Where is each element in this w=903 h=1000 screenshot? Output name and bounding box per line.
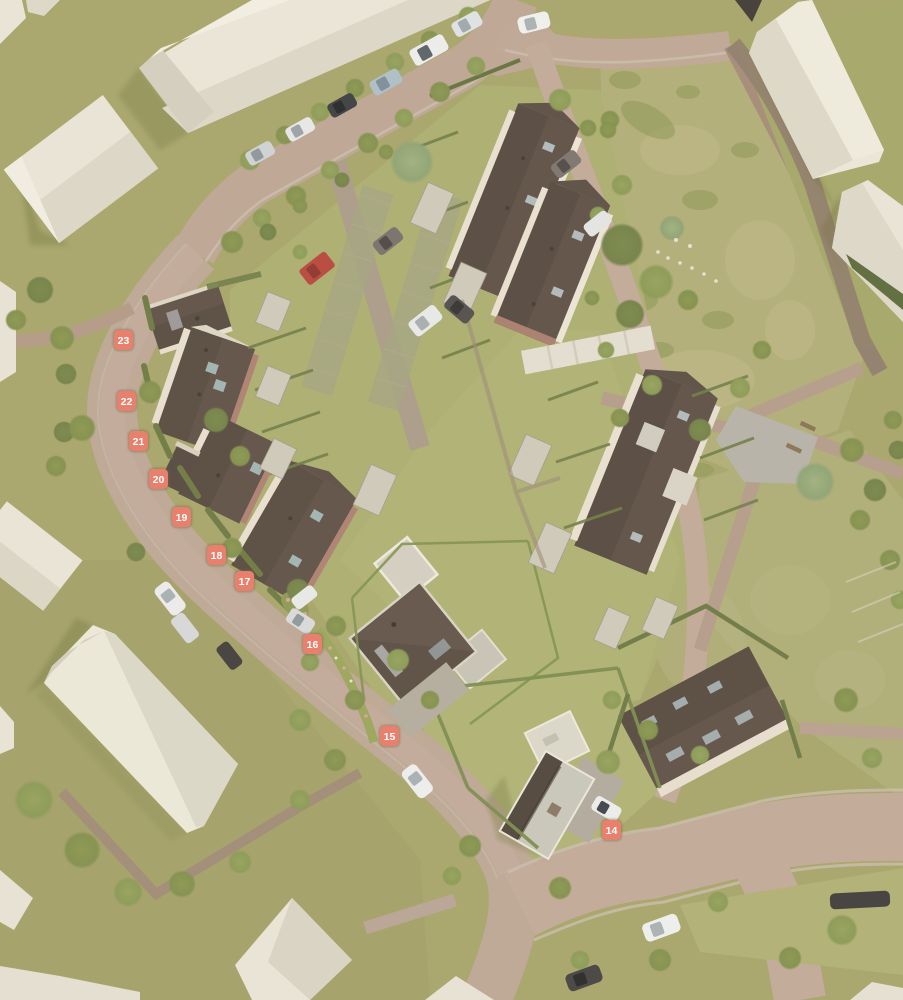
svg-text:16: 16 bbox=[307, 639, 319, 651]
svg-text:23: 23 bbox=[118, 335, 130, 347]
svg-text:15: 15 bbox=[384, 731, 396, 743]
svg-text:19: 19 bbox=[176, 512, 188, 524]
svg-text:22: 22 bbox=[121, 396, 133, 408]
svg-text:17: 17 bbox=[239, 576, 251, 588]
svg-text:18: 18 bbox=[211, 550, 223, 562]
svg-text:20: 20 bbox=[153, 474, 165, 486]
svg-text:21: 21 bbox=[133, 436, 145, 448]
svg-text:14: 14 bbox=[606, 825, 618, 837]
